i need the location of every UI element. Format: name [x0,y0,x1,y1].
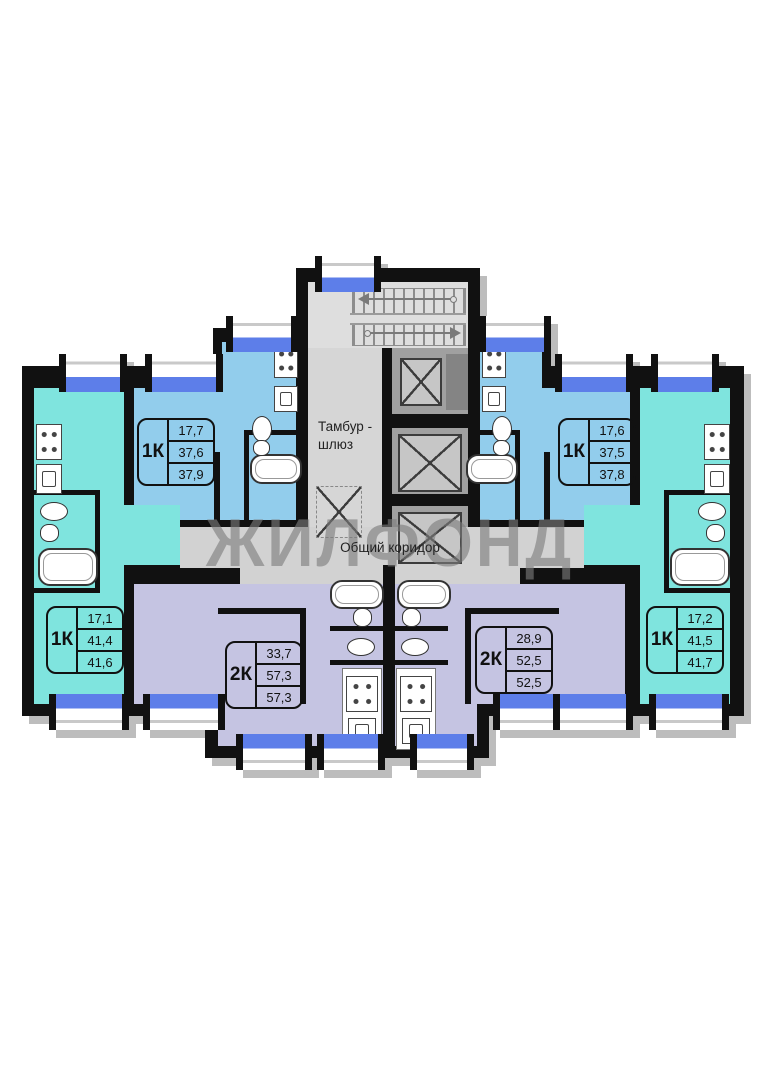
toilet [40,502,68,521]
window [145,354,223,392]
elevator-shaft-1 [398,434,462,492]
apartment-area: 37,9 [169,464,213,484]
window [317,734,385,770]
washbasin [493,440,510,456]
apartment-label-1k-top-right: 1К 17,6 37,5 37,8 [558,418,636,486]
apartment-type: 2К [227,643,255,707]
stair-landing [350,313,466,325]
apartment-area: 57,3 [257,665,301,687]
wall-elevator-sep [392,414,468,428]
apartment-type: 1К [648,608,676,672]
kitchen-sink [704,464,730,494]
toilet [252,416,272,442]
stove [400,676,432,712]
window [651,354,719,392]
apartment-area: 41,7 [678,652,722,672]
stair-direction-line-down [368,332,452,334]
stove [704,424,730,460]
toilet [492,416,512,442]
kitchen-sink [482,386,506,412]
washbasin [402,608,421,627]
apartment-area: 37,6 [169,442,213,464]
kitchen-sink [274,386,298,412]
elevator-shaft-small [400,358,442,406]
window [49,694,129,730]
apartment-area: 41,5 [678,630,722,652]
bathtub [466,454,518,484]
bathtub [38,548,98,586]
stove [346,676,378,712]
wall-2k-bath [330,660,448,665]
apartment-type: 1К [48,608,76,672]
vestibule-label-line1: Тамбур - [318,418,388,436]
apartment-area: 17,1 [78,608,122,630]
wall-bath-right [664,490,669,592]
stove [36,424,62,460]
stair-line-dot [364,330,371,337]
apartment-area: 37,8 [590,464,634,484]
vestibule-label-line2: шлюз [318,436,388,454]
wall-2k-right-bedroom [465,608,559,614]
window [59,354,127,392]
apartment-type: 1К [560,420,588,484]
window [315,256,381,292]
apartment-area: 57,3 [257,687,301,707]
wall-2k-left-bedroom [218,608,304,614]
vestibule-label: Тамбур - шлюз [318,418,388,454]
stair-direction-line-up [368,298,452,300]
elevator-shaft-side [446,354,468,410]
window [236,734,312,770]
apartment-label-1k-top-left: 1К 17,7 37,6 37,9 [137,418,215,486]
window [649,694,729,730]
apartment-area: 41,6 [78,652,122,672]
wall-bath-right [664,588,730,593]
toilet [401,638,429,656]
washbasin [706,524,725,542]
window [479,316,551,352]
wall-2k-right-bedroom [465,608,471,704]
apartment-type: 2К [477,628,505,692]
apartment-area: 52,5 [507,672,551,692]
window [410,734,474,770]
apartment-area: 52,5 [507,650,551,672]
washbasin [40,524,59,542]
wall-2k-bath [330,626,448,631]
stair-line-dot [450,296,457,303]
window [143,694,225,730]
kitchen-sink [36,464,62,494]
window [553,694,633,730]
apartment-area: 37,5 [590,442,634,464]
apartment-area: 17,2 [678,608,722,630]
corridor-label: Общий коридор [278,539,502,557]
washbasin [353,608,372,627]
floor-plan-page: ЖИЛФОНД Тамбур - шлюз Общий коридор 1К 1… [0,0,764,1080]
bathtub [250,454,302,484]
toilet [698,502,726,521]
apartment-area: 41,4 [78,630,122,652]
window [226,316,298,352]
apartment-area: 33,7 [257,643,301,665]
wall-center-divider [383,565,395,748]
apartment-area: 17,7 [169,420,213,442]
wall-bath-left [34,588,100,593]
washbasin [253,440,270,456]
apartment-label-1k-bottom-left: 1К 17,1 41,4 41,6 [46,606,124,674]
apartment-label-2k-right: 2К 28,9 52,5 52,5 [475,626,553,694]
stair-arrow-left-icon [358,293,369,305]
bathtub [670,548,730,586]
window [555,354,633,392]
apartment-type: 1К [139,420,167,484]
apartment-label-2k-left: 2К 33,7 57,3 57,3 [225,641,303,709]
apartment-label-1k-bottom-right: 1К 17,2 41,5 41,7 [646,606,724,674]
apartment-area: 28,9 [507,628,551,650]
stair-arrow-right-icon [450,327,461,339]
toilet [347,638,375,656]
apartment-area: 17,6 [590,420,634,442]
